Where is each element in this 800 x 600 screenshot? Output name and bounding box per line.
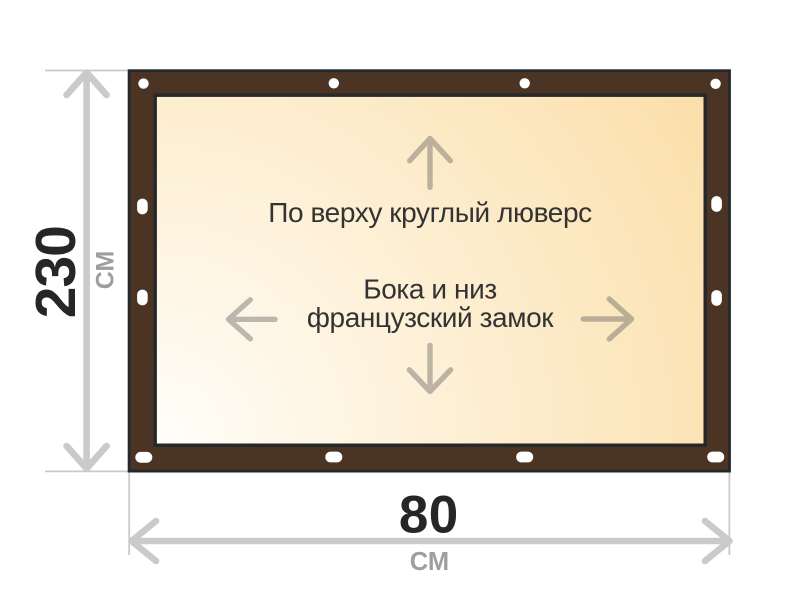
svg-text:СМ: СМ [410, 548, 449, 576]
svg-text:французский замок: французский замок [307, 302, 554, 333]
svg-text:230: 230 [24, 226, 88, 318]
svg-text:СМ: СМ [91, 251, 119, 290]
svg-text:80: 80 [399, 486, 459, 545]
svg-text:По верху круглый люверс: По верху круглый люверс [268, 197, 592, 228]
svg-text:Бока и низ: Бока и низ [363, 273, 497, 304]
